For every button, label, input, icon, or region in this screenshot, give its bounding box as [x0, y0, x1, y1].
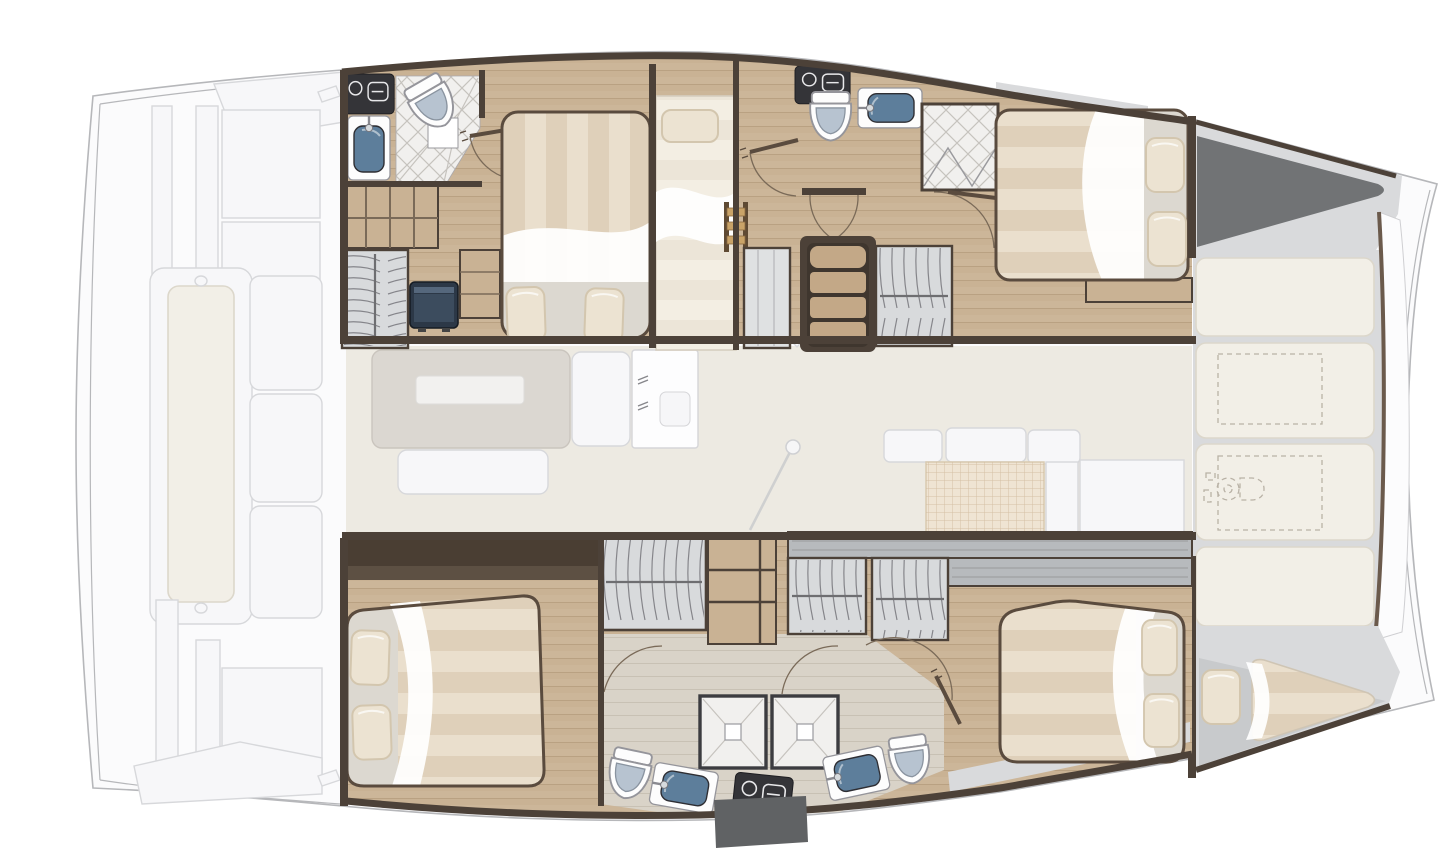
- catamaran-floor-plan: [0, 0, 1440, 868]
- partition: [598, 538, 604, 634]
- aft-deck: [134, 72, 344, 804]
- vanity-counter: [342, 74, 394, 114]
- shelf-unit: [708, 534, 776, 644]
- pillow: [352, 705, 392, 760]
- pillow: [506, 287, 546, 342]
- sunpad-panel: [1196, 444, 1374, 540]
- sheet-fold: [502, 222, 650, 282]
- side-cabinet: [460, 250, 500, 318]
- partition: [342, 181, 482, 187]
- transom-step: [714, 796, 808, 848]
- bed-step: [1086, 278, 1192, 302]
- tv-screen: [410, 282, 458, 332]
- cockpit-column: [152, 106, 172, 282]
- door-header: [802, 188, 866, 195]
- galley-cabinet: [946, 428, 1026, 462]
- port-hull: [340, 56, 1196, 352]
- cockpit-table-ghost: [222, 110, 320, 218]
- starboard-hull: [340, 532, 1196, 848]
- pillow: [584, 288, 624, 343]
- bench-fitting: [195, 603, 207, 613]
- backrest-panel: [250, 394, 322, 502]
- sink: [858, 88, 922, 128]
- cockpit-door: [632, 350, 698, 448]
- pillow: [1148, 212, 1186, 266]
- companionway-stairs: [800, 236, 876, 352]
- mainsheet-block: [786, 440, 800, 454]
- pillow: [662, 110, 718, 142]
- backrest-panel: [250, 276, 322, 390]
- port-forward-bulkhead: [1188, 116, 1196, 258]
- closet: [744, 248, 790, 348]
- sofa: [572, 352, 630, 446]
- partition: [733, 58, 739, 350]
- pillow: [1142, 620, 1177, 675]
- partition: [649, 64, 656, 348]
- galley-cabinet: [884, 430, 942, 462]
- pillow: [1144, 694, 1179, 747]
- aft-bench-cushion: [168, 286, 234, 602]
- starboard-aft-cabin: [347, 596, 544, 786]
- shower-stall: [922, 104, 998, 190]
- galley-cabinet: [1028, 430, 1080, 464]
- floor-plan-canvas: [0, 0, 1440, 868]
- backrest-panel: [250, 506, 322, 618]
- dining-bench: [398, 450, 548, 494]
- shower-stall: [700, 696, 766, 768]
- partition: [598, 634, 604, 806]
- pillow: [350, 630, 390, 685]
- sunpad-panel: [1196, 547, 1374, 626]
- port-hull-inner-wall: [342, 336, 1196, 344]
- port-fwd-cabin: [996, 110, 1192, 302]
- starboard-hull-aft-wall: [340, 538, 348, 806]
- side-shelf: [948, 558, 1192, 586]
- sunpad-panel: [1196, 258, 1374, 336]
- port-hull-aft-wall: [340, 70, 348, 344]
- foredeck: [1188, 122, 1409, 778]
- saloon: [346, 327, 1192, 552]
- starboard-hull-inner-wall: [342, 532, 1196, 540]
- bench-fitting: [195, 276, 207, 286]
- hull-side-cabinet-shelf: [342, 566, 600, 580]
- starboard-fwd-cabin: [1000, 601, 1184, 762]
- cockpit-column: [156, 600, 178, 768]
- pillow: [1146, 138, 1184, 192]
- pillow: [1202, 670, 1240, 724]
- sink: [348, 116, 390, 180]
- partition: [479, 70, 485, 118]
- table-tray: [416, 376, 524, 404]
- port-companionway: [744, 236, 952, 352]
- port-aft-cabin: [502, 112, 650, 343]
- cockpit-column: [196, 106, 218, 282]
